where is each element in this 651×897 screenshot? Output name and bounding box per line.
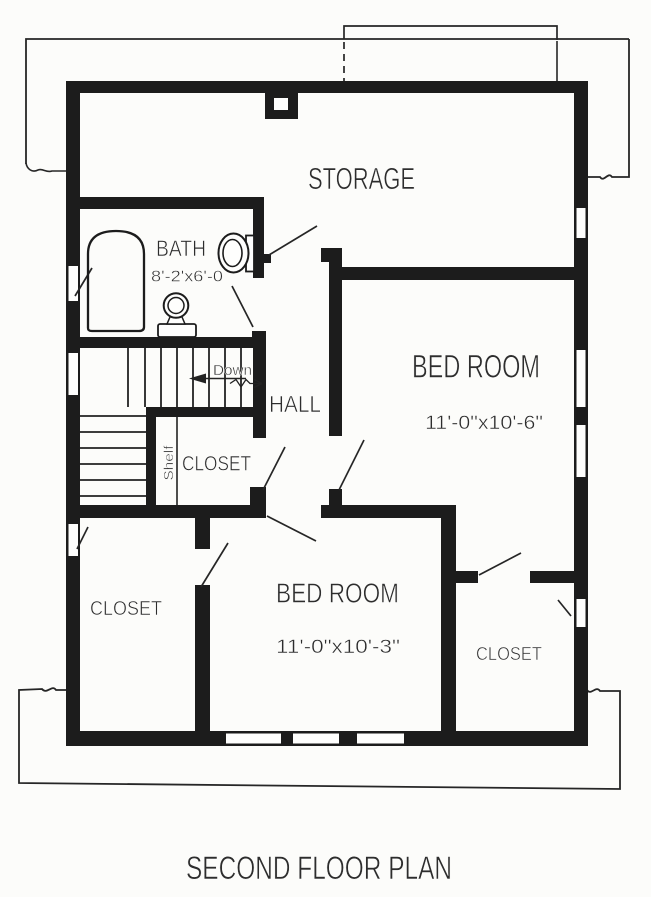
svg-text:HALL: HALL [269,391,321,417]
svg-text:SECOND FLOOR PLAN: SECOND FLOOR PLAN [186,850,452,886]
svg-text:CLOSET: CLOSET [476,644,542,664]
svg-text:BED ROOM: BED ROOM [412,349,540,385]
svg-text:STORAGE: STORAGE [308,161,415,196]
svg-text:11'-0"x10'-6": 11'-0"x10'-6" [425,413,543,434]
svg-text:BATH: BATH [156,236,206,261]
svg-text:CLOSET: CLOSET [90,598,162,620]
svg-text:11'-0"x10'-3": 11'-0"x10'-3" [276,637,400,658]
svg-text:BED ROOM: BED ROOM [276,578,399,609]
svg-text:Shelf: Shelf [161,445,176,480]
svg-text:CLOSET: CLOSET [182,453,251,476]
svg-text:8'-2'x6'-0: 8'-2'x6'-0 [151,269,223,286]
svg-text:Down: Down [213,362,252,379]
